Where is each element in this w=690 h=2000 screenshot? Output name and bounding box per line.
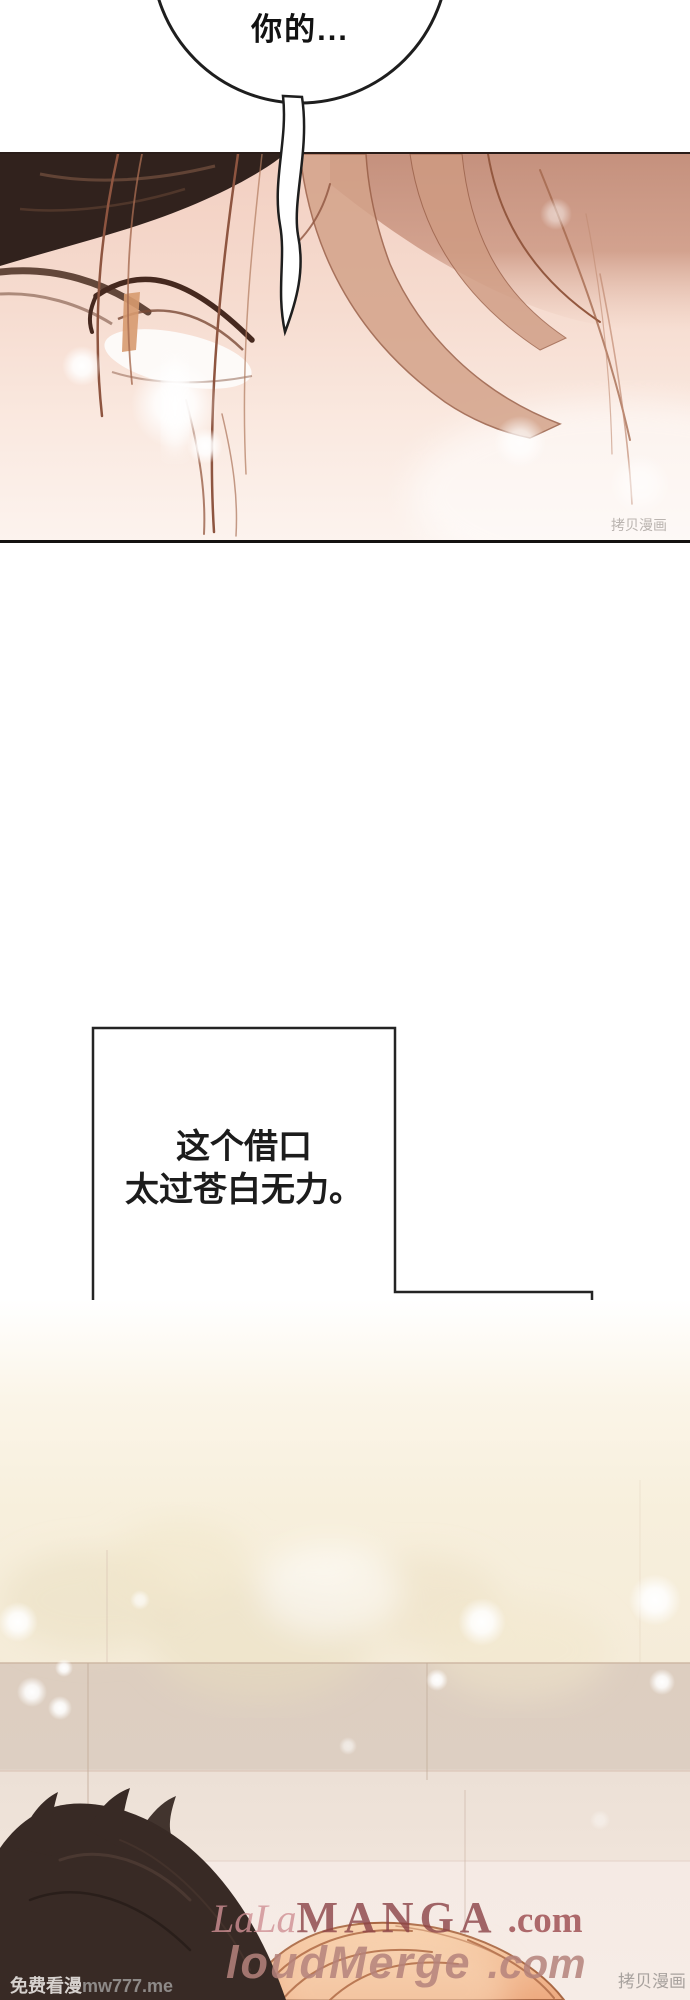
- watermark-site-manga-suffix: .com: [508, 1900, 583, 1941]
- watermark-site-manga-caps: MANGA: [297, 1893, 498, 1942]
- watermark-site-merge-suffix: .com: [488, 1940, 586, 1987]
- watermark-bottom-left-url: mw777.me: [82, 1976, 173, 1996]
- watermark-bottom-left: 免费看漫mw777.me: [10, 1977, 173, 1995]
- manhwa-page: 你的... 拷贝漫画 这个借口 太过苍白无力。 连我听着都 觉得心虚。: [0, 0, 690, 2000]
- speech-bubble: [0, 0, 690, 345]
- watermark-site-merge: loudMerge.com: [226, 1940, 586, 1985]
- watermark-site-manga-script: LaLa: [212, 1896, 297, 1941]
- watermark-bottom-right: 拷贝漫画: [618, 1973, 686, 1990]
- watermark-site-manga: LaLaMANGA.com: [212, 1896, 583, 1940]
- watermark-panel-corner: 拷贝漫画: [611, 515, 667, 535]
- caption-top-line1: 这个借口: [93, 1126, 395, 1169]
- watermark-site-merge-name: loudMerge: [226, 1937, 472, 1988]
- caption-top-line2: 太过苍白无力。: [93, 1169, 395, 1212]
- speech-bubble-tail: [278, 96, 304, 332]
- watermark-bottom-left-cn: 免费看漫: [10, 1976, 82, 1996]
- caption-top: 这个借口 太过苍白无力。: [93, 1126, 395, 1212]
- speech-bubble-text: 你的...: [205, 4, 395, 49]
